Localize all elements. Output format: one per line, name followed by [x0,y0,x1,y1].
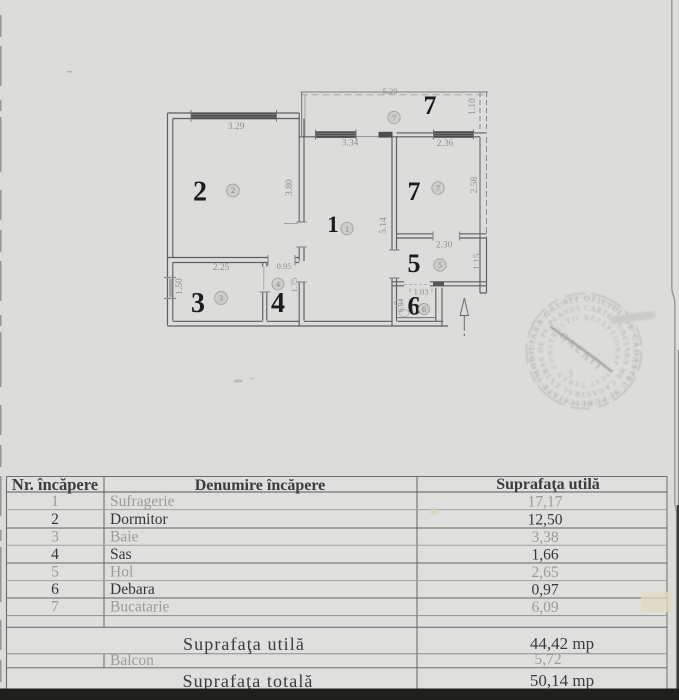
svg-text:1.10: 1.10 [468,98,478,115]
svg-text:7: 7 [51,599,59,616]
svg-text:Suprafaţa utilă: Suprafaţa utilă [183,634,305,654]
svg-text:1,66: 1,66 [531,547,558,564]
svg-text:Balcon: Balcon [110,652,154,669]
svg-text:12,50: 12,50 [528,512,563,529]
svg-text:1: 1 [327,212,339,237]
svg-text:Suprafaţa totală: Suprafaţa totală [182,671,313,691]
svg-text:2: 2 [51,511,59,528]
svg-text:2.25: 2.25 [213,263,230,273]
svg-text:2.58: 2.58 [470,176,480,193]
svg-text:1: 1 [345,225,349,234]
svg-text:6: 6 [422,305,426,314]
svg-text:3.80: 3.80 [285,179,295,196]
svg-text:0.94: 0.94 [397,299,406,313]
svg-text:Baie: Baie [110,529,139,546]
svg-text:5: 5 [438,261,442,270]
svg-text:3.29: 3.29 [228,122,245,132]
svg-text:3: 3 [51,529,59,546]
svg-text:3: 3 [219,294,223,303]
svg-text:2: 2 [231,186,235,195]
svg-text:Denumire încăpere: Denumire încăpere [195,477,326,494]
svg-text:5: 5 [51,564,59,581]
svg-text:7: 7 [424,91,437,120]
svg-text:5.20: 5.20 [383,86,398,96]
svg-text:2.36: 2.36 [437,139,454,149]
svg-text:7: 7 [408,177,421,206]
svg-text:3.34: 3.34 [342,139,359,149]
svg-text:Sas: Sas [110,546,132,563]
svg-text:6: 6 [51,581,59,598]
svg-text:50,14 mp: 50,14 mp [530,671,594,690]
svg-text:7: 7 [436,184,440,193]
svg-text:2: 2 [193,177,207,208]
svg-text:2.30: 2.30 [436,241,453,251]
svg-text:6,09: 6,09 [531,599,558,616]
svg-text:1.15: 1.15 [473,253,483,270]
svg-text:Dormitor: Dormitor [110,511,169,528]
svg-text:3,38: 3,38 [531,529,558,546]
svg-text:5: 5 [408,249,421,278]
svg-text:0.95: 0.95 [277,261,292,271]
svg-text:4: 4 [51,546,59,563]
svg-text:1: 1 [51,493,59,510]
svg-text:Debara: Debara [110,581,155,598]
svg-text:1.75: 1.75 [289,278,299,293]
svg-text:Nr. încăpere: Nr. încăpere [12,475,98,494]
svg-text:3: 3 [568,370,573,380]
svg-text:4: 4 [271,288,285,319]
svg-text:4: 4 [276,280,280,289]
svg-text:3: 3 [191,288,205,319]
svg-text:7: 7 [392,114,396,123]
svg-text:17,17: 17,17 [528,494,563,511]
svg-text:1.03: 1.03 [414,287,429,297]
svg-text:Sufragerie: Sufragerie [110,493,175,510]
svg-text:Hol: Hol [110,564,133,581]
svg-text:Bucatarie: Bucatarie [110,599,170,616]
svg-text:2,65: 2,65 [531,564,558,581]
svg-text:Suprafaţa utilă: Suprafaţa utilă [496,476,600,493]
svg-text:1.50: 1.50 [175,278,185,295]
svg-text:0,97: 0,97 [531,582,558,599]
svg-text:5,72: 5,72 [534,651,561,668]
svg-text:5.14: 5.14 [379,217,389,234]
